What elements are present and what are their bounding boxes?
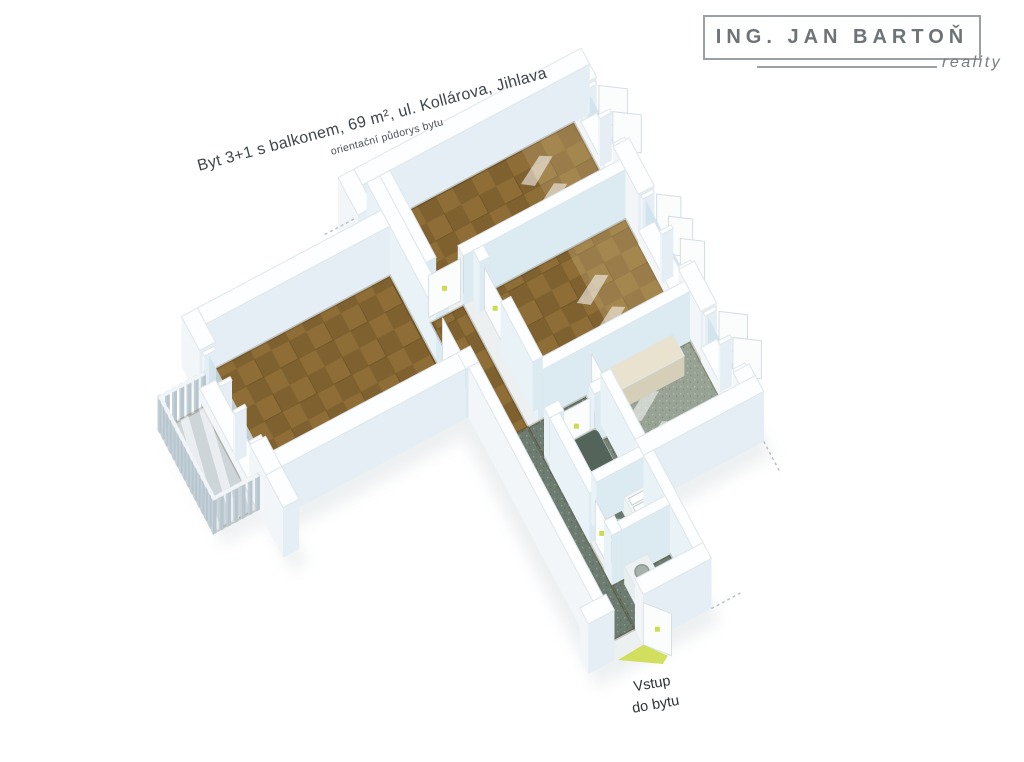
railing-slat-face-l bbox=[179, 437, 181, 474]
railing-slat-face-l bbox=[201, 477, 203, 514]
balcony-door-frame-face-l bbox=[233, 410, 235, 462]
balcony-door-frame-face-f bbox=[235, 408, 247, 462]
bedroom-2-door-handle bbox=[493, 306, 498, 311]
agency-logo: ING. JAN BARTOŇ bbox=[703, 15, 981, 60]
railing-slat bbox=[226, 488, 231, 527]
wall-face-f bbox=[612, 530, 622, 585]
railing-slat-face-f bbox=[249, 480, 252, 516]
railing-slat-face-l bbox=[197, 470, 199, 507]
wall bbox=[580, 594, 615, 674]
agency-name: ING. JAN BARTOŇ bbox=[716, 26, 968, 49]
cut-line bbox=[711, 592, 741, 608]
railing-slat bbox=[233, 484, 238, 523]
railing-slat-face-f bbox=[213, 499, 216, 535]
railing-slat-face-f bbox=[242, 484, 245, 520]
railing-slat-face-l bbox=[240, 482, 242, 519]
railing-slat-face-l bbox=[168, 416, 170, 453]
railing-slat bbox=[187, 379, 192, 418]
bedroom-1-door-handle bbox=[442, 286, 447, 291]
railing-slat-face-l bbox=[248, 478, 250, 515]
entry-label-line1: Vstup bbox=[632, 673, 671, 695]
railing-slat bbox=[179, 383, 184, 422]
railing-slat-face-f bbox=[188, 382, 191, 418]
railing-slat-face-f bbox=[257, 476, 260, 512]
railing-slat-face-f bbox=[181, 386, 184, 422]
railing-slat-face-f bbox=[235, 487, 238, 523]
railing-slat-face-l bbox=[165, 410, 167, 447]
railing-slat-face-l bbox=[219, 494, 221, 531]
railing-slat-face-l bbox=[183, 443, 185, 480]
bedroom-1-window-frame bbox=[598, 109, 612, 167]
logo-divider-line bbox=[757, 66, 937, 68]
page: { "page": { "background": "#ffffff" }, "… bbox=[0, 0, 1024, 757]
wall bbox=[604, 516, 622, 586]
railing-slat-face-l bbox=[204, 484, 206, 521]
railing-slat-face-l bbox=[233, 486, 235, 523]
kitchen-window-frame bbox=[718, 335, 732, 393]
railing-slat-face-f bbox=[220, 495, 223, 531]
railing-slat-face-f bbox=[228, 491, 231, 527]
kitchen-window-frame-face-f bbox=[720, 338, 732, 392]
balcony-door-frame bbox=[233, 404, 247, 462]
agency-tagline: reality bbox=[942, 54, 1002, 72]
railing-slat-face-l bbox=[194, 464, 196, 501]
wc-door-handle bbox=[599, 531, 604, 536]
railing-slat bbox=[248, 477, 253, 516]
bedroom-2-window-frame bbox=[660, 225, 674, 283]
railing-slat-face-l bbox=[208, 491, 210, 528]
bedroom-2-window-frame-face-l bbox=[660, 231, 662, 283]
railing-slat-face-f bbox=[196, 378, 199, 414]
railing-slat bbox=[240, 480, 245, 519]
railing-slat bbox=[255, 473, 260, 512]
floorplan-canvas bbox=[0, 0, 1024, 757]
railing-slat-face-l bbox=[212, 498, 214, 535]
railing-slat-face-l bbox=[255, 474, 257, 511]
kitchen-window-frame-face-l bbox=[718, 341, 720, 393]
railing-slat-face-l bbox=[176, 430, 178, 467]
floorplan-rendering bbox=[0, 0, 1024, 757]
wall-face-f bbox=[533, 357, 543, 412]
railing-slat-face-l bbox=[158, 396, 160, 433]
railing-slat-face-l bbox=[226, 490, 228, 527]
railing-slat bbox=[219, 492, 224, 531]
bedroom-1-window-frame-face-l bbox=[598, 115, 600, 167]
bedroom-1-window-frame-face-f bbox=[600, 113, 612, 167]
bathroom-door-handle bbox=[574, 424, 579, 429]
railing-slat-face-l bbox=[194, 377, 196, 414]
bedroom-2-window-frame-face-f bbox=[662, 228, 674, 282]
railing-slat bbox=[212, 496, 217, 535]
wall-face-f bbox=[283, 499, 299, 557]
railing-slat-face-l bbox=[186, 450, 188, 487]
railing-slat-face-l bbox=[172, 423, 174, 460]
railing-slat bbox=[194, 375, 199, 414]
railing-slat-face-l bbox=[161, 403, 163, 440]
railing-slat-face-l bbox=[190, 457, 192, 494]
railing-slat-face-l bbox=[187, 381, 189, 418]
entry-door-handle bbox=[655, 627, 660, 632]
railing-slat-face-l bbox=[179, 385, 181, 422]
